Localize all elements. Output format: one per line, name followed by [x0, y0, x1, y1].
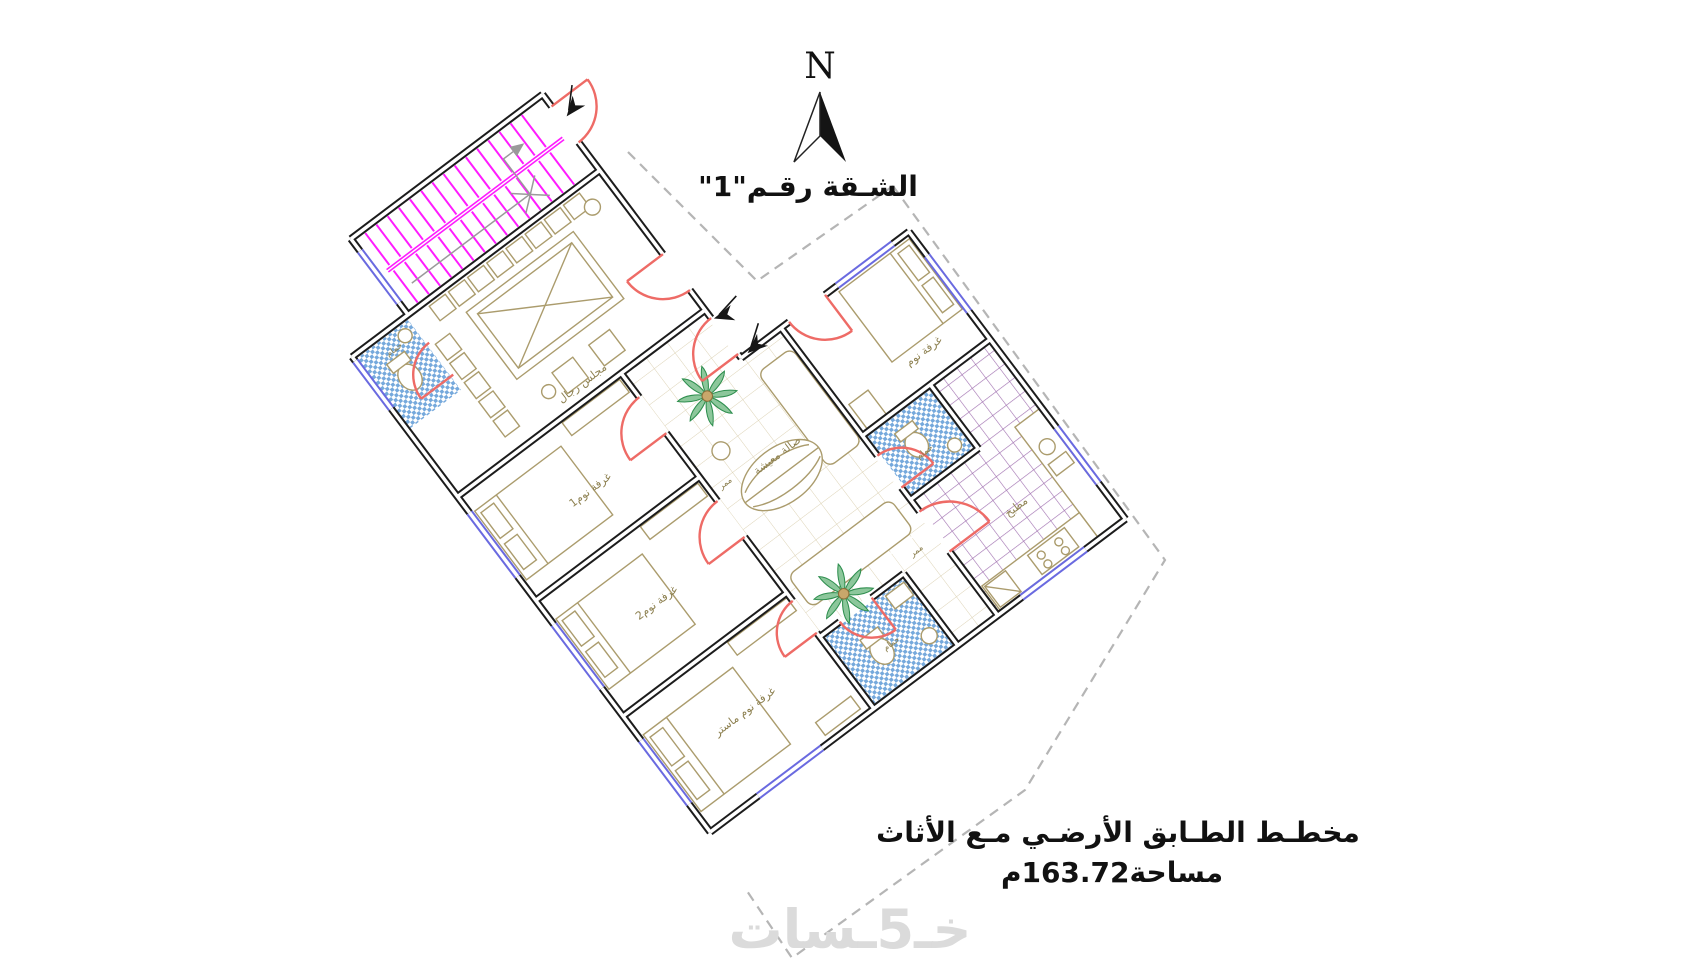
building-plan: مجلس رجال صالة معيشة غرفة نوم غرفة نوم1 …: [295, 0, 1126, 832]
caption-line1: مخطـط الطـابق الأرضـي مـع الأثاث: [876, 815, 1360, 849]
watermark-logo: خـ5ـسات: [729, 898, 972, 961]
north-arrow-icon: [820, 92, 846, 162]
floor-plan-drawing: مجلس رجال صالة معيشة غرفة نوم غرفة نوم1 …: [0, 0, 1700, 970]
north-letter: N: [804, 46, 836, 87]
north-arrow-icon: [794, 92, 820, 162]
caption-line2: مساحة163.72م: [1001, 856, 1223, 889]
north-compass: N: [794, 46, 846, 162]
apartment-title: الشـقة رقـم"1": [698, 170, 918, 203]
plan-caption: مخطـط الطـابق الأرضـي مـع الأثاث مساحة16…: [876, 815, 1360, 889]
floor-plan-sheet: مجلس رجال صالة معيشة غرفة نوم غرفة نوم1 …: [0, 0, 1700, 970]
entry-arrow-icon: [710, 296, 744, 326]
majlis-cushions: [415, 193, 670, 437]
